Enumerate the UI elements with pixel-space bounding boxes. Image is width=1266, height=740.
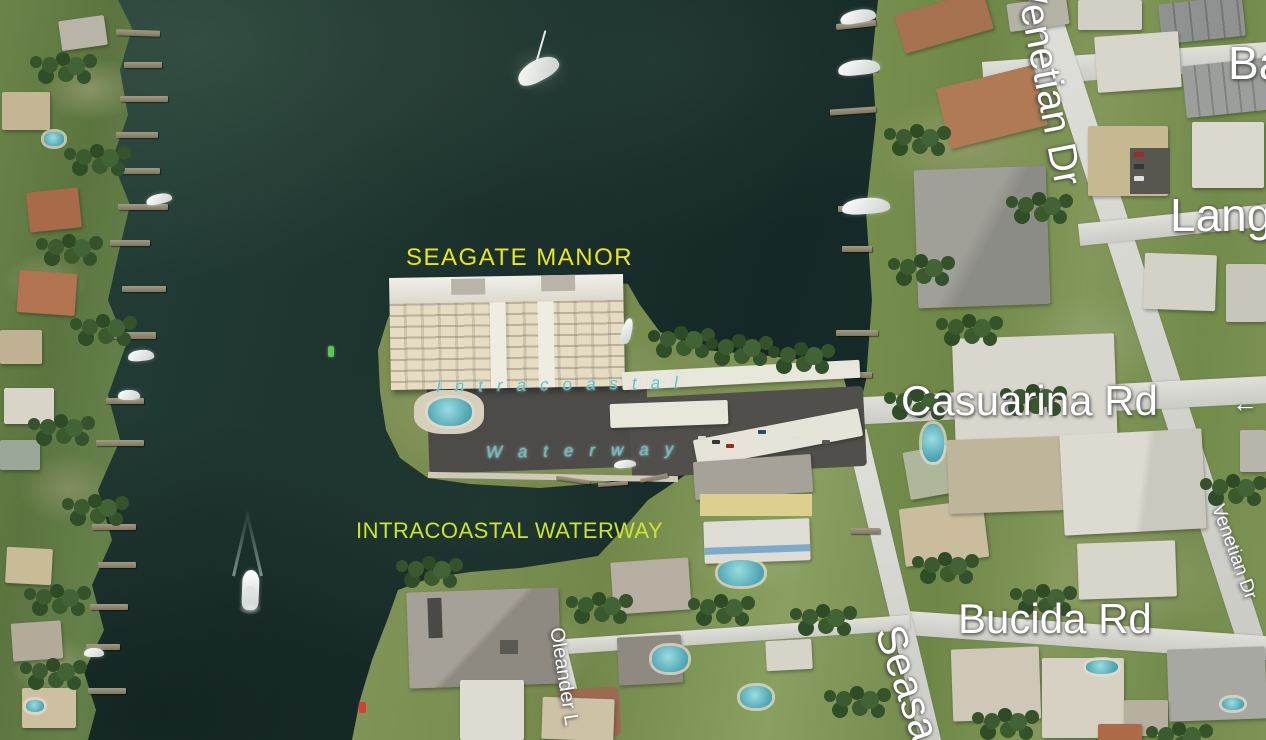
dock xyxy=(88,688,126,694)
tree-cluster xyxy=(688,598,700,610)
tree-cluster xyxy=(64,148,76,160)
parked-car xyxy=(1134,152,1144,157)
tree-cluster xyxy=(790,608,802,620)
rooftop-unit xyxy=(451,278,485,295)
tree-cluster xyxy=(1200,478,1212,490)
house-roof-terracotta xyxy=(26,187,82,232)
condo-roof-white xyxy=(1059,428,1206,535)
parked-car xyxy=(698,436,706,440)
tree-cluster xyxy=(62,498,74,510)
apartment-roof xyxy=(1078,0,1142,30)
rooftop-unit xyxy=(541,275,575,292)
tree-cluster xyxy=(824,690,836,702)
parked-car xyxy=(1134,164,1144,169)
tree-cluster xyxy=(1146,726,1158,738)
house-roof xyxy=(460,680,524,740)
tree-cluster xyxy=(566,596,578,608)
roof-detail xyxy=(427,598,442,638)
swimming-pool xyxy=(26,700,44,712)
tree-cluster xyxy=(1006,196,1018,208)
house-roof-terracotta xyxy=(1098,724,1142,740)
dock xyxy=(836,330,878,336)
parked-car xyxy=(1134,176,1144,181)
dock xyxy=(92,524,136,530)
palm-cluster xyxy=(768,346,780,358)
motorboat-cabin xyxy=(246,586,255,597)
dock xyxy=(110,240,150,246)
channel-marker-green-icon xyxy=(328,346,334,357)
dock xyxy=(842,246,872,252)
buoy-red-icon xyxy=(359,702,366,713)
tree-cluster xyxy=(396,560,408,572)
swimming-pool xyxy=(740,686,772,708)
swimming-pool xyxy=(652,646,688,672)
direction-arrow-icon: ← xyxy=(1232,390,1258,416)
apartment-roof xyxy=(947,436,1068,514)
palm-cluster xyxy=(648,330,660,342)
tree-cluster xyxy=(912,556,924,568)
tree-cluster xyxy=(936,318,948,330)
dock xyxy=(850,528,880,534)
road-label-ba: Ba xyxy=(1228,40,1266,86)
window-stripe xyxy=(704,544,810,555)
house-roof xyxy=(765,639,813,671)
tree-cluster xyxy=(36,238,48,250)
dock xyxy=(102,332,156,339)
house-roof xyxy=(5,547,53,585)
roof-detail xyxy=(500,640,518,654)
tree-cluster xyxy=(20,662,32,674)
carport-roof xyxy=(610,400,729,428)
catamaran-icon xyxy=(506,44,570,96)
house-roof xyxy=(1143,253,1217,311)
dock xyxy=(90,604,128,610)
estate-roof xyxy=(914,166,1051,309)
docked-boat-icon xyxy=(84,648,104,657)
house-roof xyxy=(610,557,691,614)
swimming-pool xyxy=(1086,660,1118,674)
house-roof xyxy=(0,440,40,470)
parked-car xyxy=(726,444,734,448)
dock xyxy=(98,562,136,568)
apartment-facade-yellow xyxy=(700,494,812,516)
tree-cluster xyxy=(30,56,42,68)
water-text-intracoastal: Intracoastal xyxy=(436,374,692,395)
swimming-pool xyxy=(1222,698,1244,710)
house-roof xyxy=(1167,646,1266,721)
house-roof xyxy=(11,620,64,661)
parked-car xyxy=(758,430,766,434)
house-roof xyxy=(1226,264,1266,322)
road-label-casuarina-rd: Casuarina Rd xyxy=(901,380,1158,422)
tree-cluster xyxy=(28,418,40,430)
tree-cluster xyxy=(70,318,82,330)
house-roof xyxy=(1240,430,1266,472)
swimming-pool xyxy=(922,424,944,462)
tree-cluster xyxy=(24,588,36,600)
dock xyxy=(118,204,168,210)
dock xyxy=(124,62,162,68)
docked-boat-icon xyxy=(118,390,140,400)
apartment-roof xyxy=(1094,31,1182,93)
house-roof xyxy=(58,15,108,51)
tree-cluster xyxy=(884,128,896,140)
dock xyxy=(122,286,166,292)
house-roof xyxy=(1192,122,1264,188)
house-roof-terracotta xyxy=(17,270,78,316)
building-roof xyxy=(389,274,623,304)
apartment-building xyxy=(703,518,810,564)
seagate-manor-building xyxy=(389,274,625,390)
dock xyxy=(116,132,158,138)
water-text-waterway: Waterway xyxy=(486,440,690,461)
house-roof xyxy=(2,92,50,130)
seagate-manor-label: SEAGATE MANOR xyxy=(406,246,633,270)
house-roof xyxy=(1077,540,1177,599)
palm-cluster xyxy=(706,338,718,350)
parked-car xyxy=(712,440,720,444)
tree-cluster xyxy=(888,258,900,270)
seagate-pool xyxy=(428,398,472,426)
stern-foam xyxy=(238,602,262,615)
boat-wake xyxy=(245,509,263,576)
parked-car xyxy=(792,436,800,440)
intracoastal-waterway-label: INTRACOASTAL WATERWAY xyxy=(356,520,663,542)
motorboat-icon xyxy=(216,500,280,620)
swimming-pool xyxy=(718,560,764,586)
parked-car xyxy=(822,440,830,444)
tree-cluster xyxy=(972,712,984,724)
swimming-pool xyxy=(44,132,64,146)
aerial-map-canvas[interactable]: Intracoastal Waterway Venetian Dr Ba Lan… xyxy=(0,0,1266,740)
dock xyxy=(120,96,168,102)
house-roof xyxy=(951,646,1041,721)
dock xyxy=(96,440,144,446)
dock xyxy=(122,168,160,174)
road-label-bucida-rd: Bucida Rd xyxy=(958,598,1152,640)
tree-cluster xyxy=(884,392,896,404)
house-roof xyxy=(0,330,42,364)
road-label-lang: Lang xyxy=(1170,192,1266,238)
